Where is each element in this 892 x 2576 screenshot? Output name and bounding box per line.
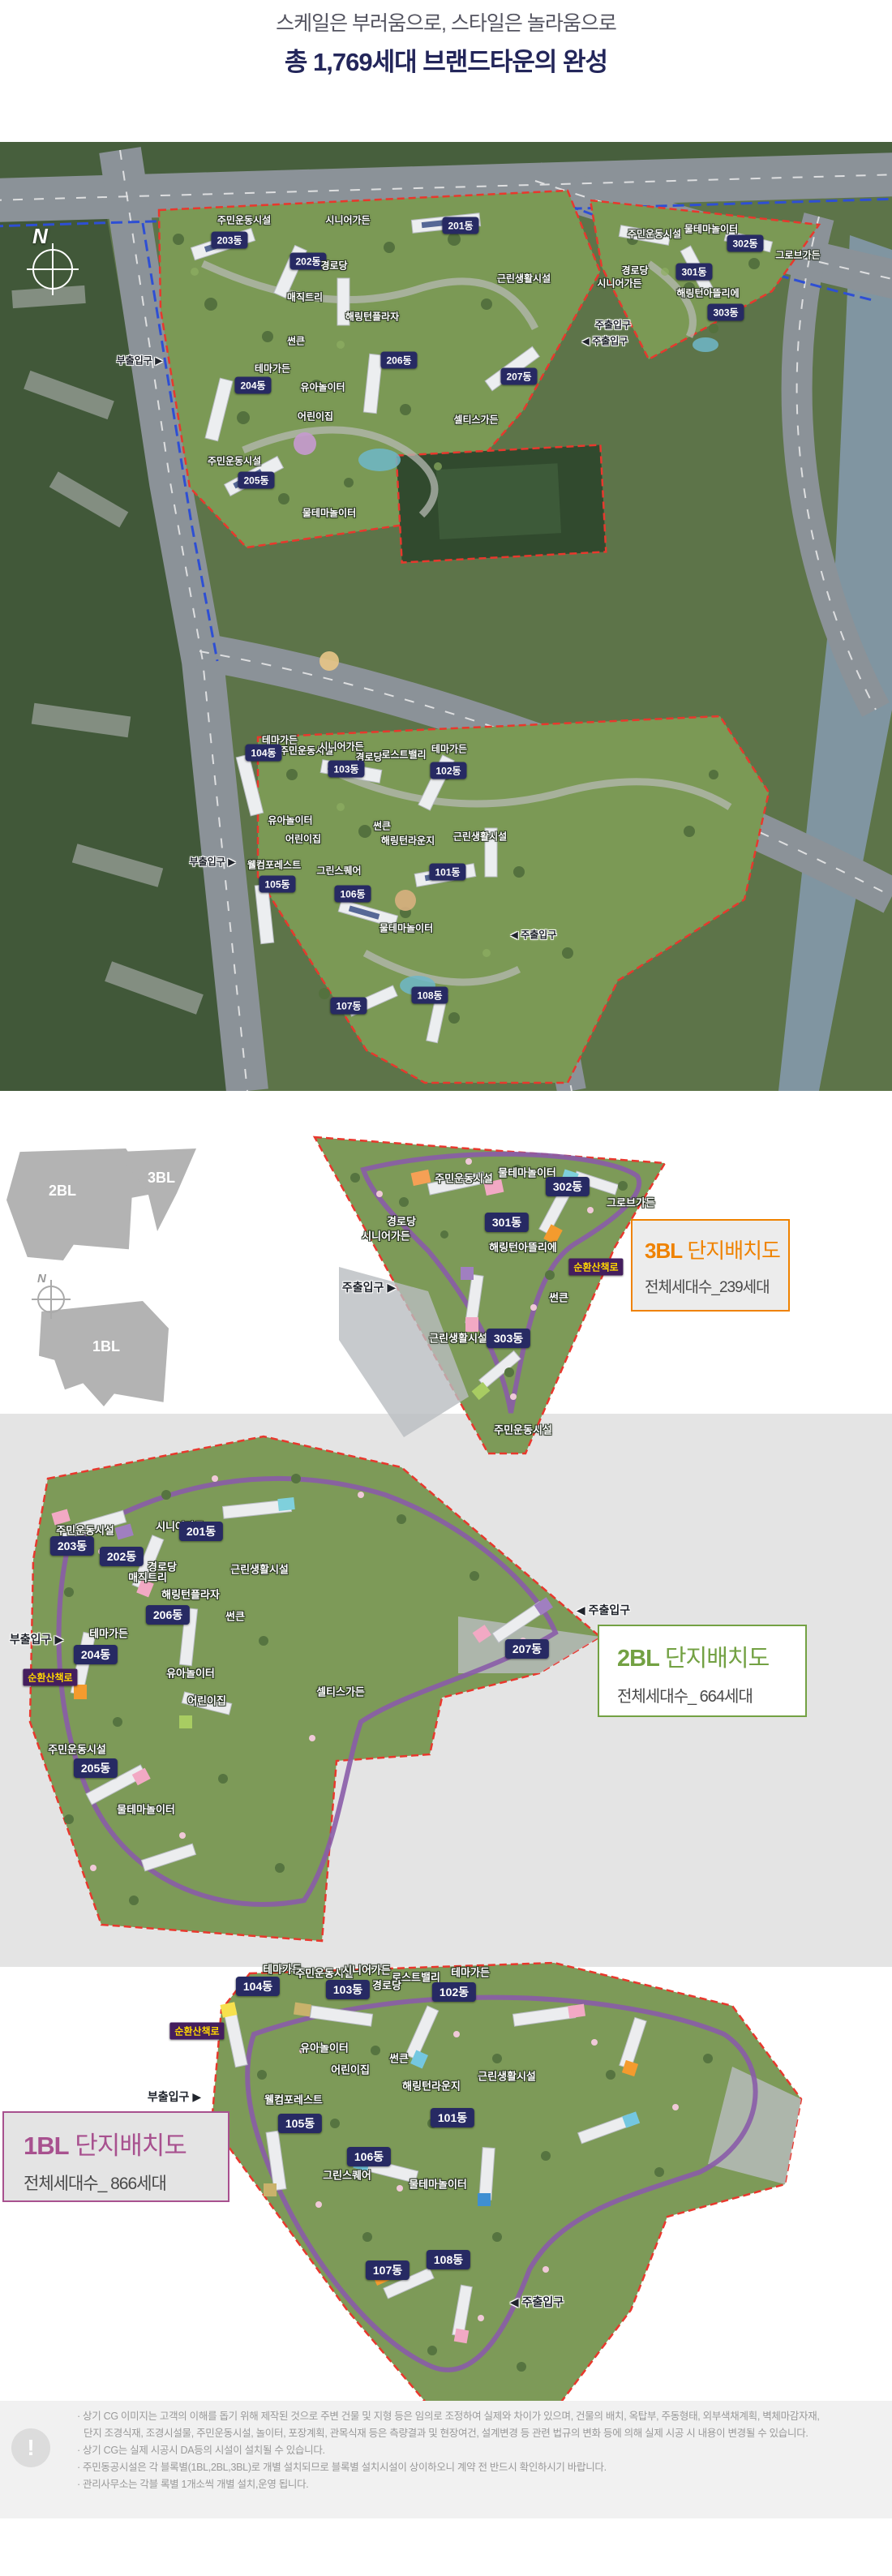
- section-2bl-households: 전체세대수_ 664세대: [617, 1683, 805, 1707]
- plan-map-2bl: [20, 1430, 624, 1953]
- section-1bl-title: 1BL 단지배치도: [24, 2125, 228, 2162]
- block-diagram-2bl-label: 2BL: [49, 1183, 76, 1200]
- footer-disclaimer: ! · 상기 CG 이미지는 고객의 이해를 돕기 위해 제작된 것으로 주변 …: [0, 2401, 892, 2518]
- block-diagram-1bl-label: 1BL: [92, 1338, 120, 1355]
- page-title: 총 1,769세대 브랜드타운의 완성: [0, 41, 892, 78]
- diagram-compass-rose-icon: [37, 1286, 65, 1313]
- aerial-site-map: [0, 142, 892, 1091]
- footer-note-line: · 관리사무소는 각블 록별 1개소씩 개별 설치,운영 됩니다.: [77, 2476, 820, 2493]
- block-diagram-1bl: 1BL: [39, 1301, 169, 1406]
- section-2bl-label-box: 2BL 단지배치도 전체세대수_ 664세대: [598, 1625, 807, 1717]
- footer-note-line: 단지 조경식재, 조경시설물, 주민운동시설, 놀이터, 포장계획, 관목식재 …: [77, 2425, 820, 2442]
- section-3bl-block: 3BL: [645, 1239, 682, 1263]
- school-field: [436, 463, 561, 539]
- section-3bl-title-rest: 단지배치도: [682, 1239, 780, 1263]
- footer-note-line: · 상기 CG는 실제 시공시 DA등의 시설이 설치될 수 있습니다.: [77, 2442, 820, 2459]
- page-header: 스케일은 부러움으로, 스타일은 놀라움으로 총 1,769세대 브랜드타운의 …: [0, 0, 892, 78]
- block-diagram-3bl-label: 3BL: [148, 1170, 175, 1187]
- footer-notes: · 상기 CG 이미지는 고객의 이해를 돕기 위해 제작된 것으로 주변 건물…: [77, 2408, 820, 2493]
- diagram-compass: N: [37, 1272, 65, 1313]
- exclamation-icon: !: [11, 2428, 50, 2467]
- section-1bl-title-rest: 단지배치도: [69, 2132, 187, 2160]
- aerial-map-graphic: [0, 142, 892, 1091]
- header-subtitle: 스케일은 부러움으로, 스타일은 놀라움으로: [0, 7, 892, 36]
- section-3bl-households: 전체세대수_239세대: [645, 1275, 788, 1297]
- section-2bl-title: 2BL 단지배치도: [617, 1639, 805, 1673]
- plan-map-3bl: [307, 1129, 671, 1462]
- section-1bl-households: 전체세대수_ 866세대: [24, 2170, 228, 2195]
- section-2bl-block: 2BL: [617, 1646, 659, 1672]
- brand-town-page: 스케일은 부러움으로, 스타일은 놀라움으로 총 1,769세대 브랜드타운의 …: [0, 0, 892, 2576]
- section-1bl-label-box: 1BL 단지배치도 전체세대수_ 866세대: [2, 2111, 229, 2202]
- section-2bl-title-rest: 단지배치도: [659, 1646, 769, 1672]
- compass: N: [32, 224, 73, 290]
- compass-rose-icon: [32, 249, 73, 290]
- footer-note-line: · 주민동공시설은 각 블록별(1BL,2BL,3BL)로 개별 설치되므로 블…: [77, 2459, 820, 2476]
- footer-note-line: · 상기 CG 이미지는 고객의 이해를 돕기 위해 제작된 것으로 주변 건물…: [77, 2408, 820, 2425]
- section-3bl-label-box: 3BL 단지배치도 전체세대수_239세대: [631, 1219, 790, 1312]
- section-3bl-title: 3BL 단지배치도: [645, 1234, 788, 1264]
- plan-map-1bl: [173, 1961, 807, 2432]
- section-1bl-block: 1BL: [24, 2132, 69, 2160]
